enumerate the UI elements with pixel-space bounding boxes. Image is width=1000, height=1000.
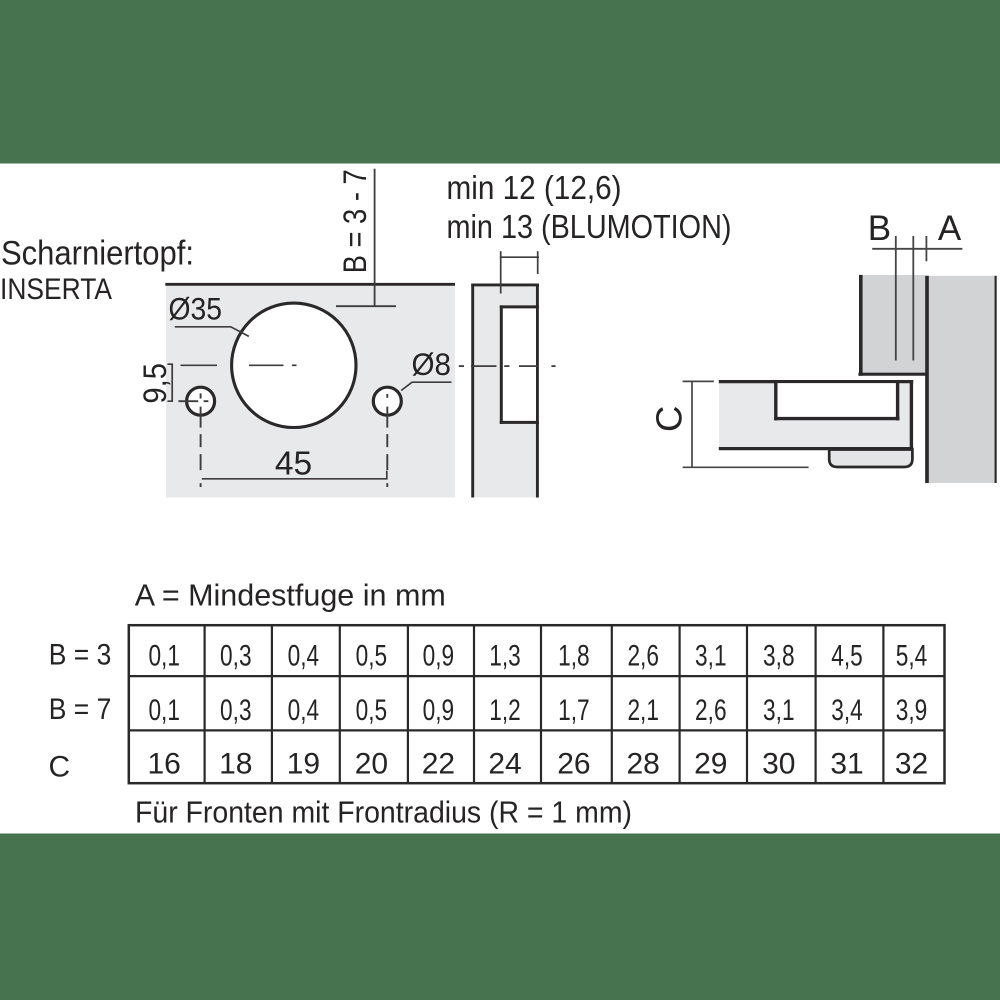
svg-text:3,9: 3,9 [896,694,928,727]
svg-text:0,3: 0,3 [220,640,252,673]
svg-text:19: 19 [287,748,320,781]
svg-text:C: C [649,406,690,432]
svg-text:3,8: 3,8 [763,640,795,673]
svg-text:min 12 (12,6): min 12 (12,6) [447,170,622,207]
svg-text:3,4: 3,4 [831,694,863,727]
svg-text:Für Fronten mit Frontradius (R: Für Fronten mit Frontradius (R = 1 mm) [135,795,632,830]
svg-text:1,7: 1,7 [558,694,590,727]
svg-text:30: 30 [762,748,795,781]
svg-text:0,5: 0,5 [356,640,388,673]
svg-text:2,6: 2,6 [695,694,727,727]
svg-text:0,1: 0,1 [148,640,180,673]
svg-text:B = 7: B = 7 [49,693,112,726]
svg-text:31: 31 [830,748,863,781]
svg-text:B: B [868,209,891,248]
svg-text:0,4: 0,4 [288,640,320,673]
svg-text:3,1: 3,1 [695,640,727,673]
svg-text:22: 22 [422,748,455,781]
svg-text:2,6: 2,6 [627,640,659,673]
svg-text:0,5: 0,5 [356,694,388,727]
svg-text:20: 20 [355,748,388,781]
svg-text:1,8: 1,8 [558,640,590,673]
svg-text:INSERTA: INSERTA [0,273,112,306]
svg-text:29: 29 [694,748,727,781]
svg-text:0,9: 0,9 [423,694,455,727]
svg-text:0,1: 0,1 [148,694,180,727]
svg-text:9,5: 9,5 [137,363,173,404]
svg-text:28: 28 [627,748,660,781]
svg-text:B = 3: B = 3 [49,639,112,672]
svg-text:0,9: 0,9 [423,640,455,673]
svg-text:Ø35: Ø35 [169,291,223,327]
svg-text:C: C [49,751,71,784]
svg-text:26: 26 [557,748,590,781]
svg-text:4,5: 4,5 [831,640,863,673]
svg-text:0,4: 0,4 [288,694,320,727]
svg-text:Scharniertopf:: Scharniertopf: [1,235,194,273]
svg-text:16: 16 [148,748,181,781]
svg-text:32: 32 [895,748,928,781]
svg-text:A = Mindestfuge in mm: A = Mindestfuge in mm [135,579,446,613]
svg-text:5,4: 5,4 [896,640,928,673]
svg-text:A: A [938,209,962,248]
svg-text:18: 18 [219,748,252,781]
svg-text:1,3: 1,3 [489,640,521,673]
svg-text:45: 45 [275,446,312,483]
svg-text:3,1: 3,1 [763,694,795,727]
svg-text:min 13 (BLUMOTION): min 13 (BLUMOTION) [447,209,732,246]
svg-text:2,1: 2,1 [627,694,659,727]
svg-text:Ø8: Ø8 [412,346,452,382]
svg-text:1,2: 1,2 [489,694,521,727]
svg-text:B = 3 - 7: B = 3 - 7 [337,169,373,273]
svg-text:24: 24 [488,748,521,781]
svg-text:0,3: 0,3 [220,694,252,727]
